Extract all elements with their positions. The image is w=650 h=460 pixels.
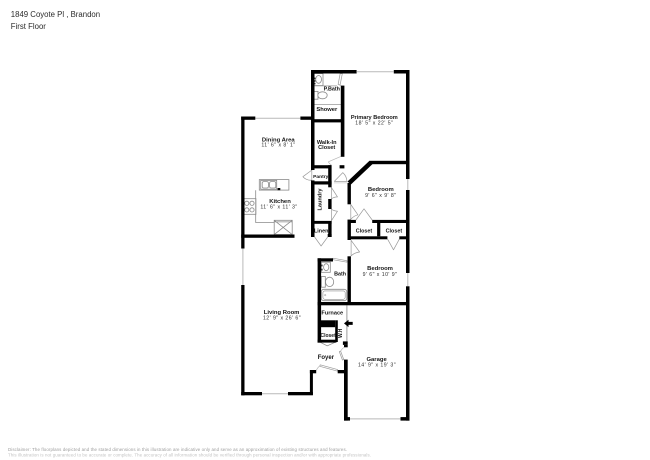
- svg-text:9' 6" x 10' 9": 9' 6" x 10' 9": [363, 272, 398, 278]
- svg-text:W.H: W.H: [338, 328, 344, 338]
- svg-text:9' 6" x 9' 8": 9' 6" x 9' 8": [365, 193, 396, 199]
- svg-text:This illustration is not guara: This illustration is not guaranteed to b…: [8, 453, 371, 458]
- svg-text:First Floor: First Floor: [11, 22, 46, 31]
- svg-text:Laundry: Laundry: [317, 188, 323, 211]
- svg-text:Disclaimer: The floorplans dep: Disclaimer: The floorplans depicted and …: [8, 447, 347, 452]
- svg-text:P.Bath: P.Bath: [324, 86, 340, 92]
- svg-text:11' 6" x 11' 3": 11' 6" x 11' 3": [260, 204, 297, 210]
- svg-text:Foyer: Foyer: [318, 355, 335, 361]
- svg-text:18' 5" x 22' 5": 18' 5" x 22' 5": [355, 121, 393, 127]
- svg-text:12' 9" x 26' 6": 12' 9" x 26' 6": [263, 316, 301, 322]
- svg-text:Closet: Closet: [320, 333, 336, 339]
- svg-text:Closet: Closet: [318, 145, 335, 151]
- svg-text:Linen: Linen: [314, 228, 328, 234]
- svg-text:11' 6" x 8' 1": 11' 6" x 8' 1": [261, 142, 295, 148]
- svg-text:Shower: Shower: [316, 107, 338, 113]
- svg-text:Bath: Bath: [334, 272, 346, 278]
- svg-text:1849 Coyote Pl , Brandon: 1849 Coyote Pl , Brandon: [11, 10, 100, 19]
- svg-text:Closet: Closet: [356, 228, 373, 234]
- svg-text:Furnace: Furnace: [321, 311, 343, 317]
- svg-text:14' 9" x 19' 3": 14' 9" x 19' 3": [358, 362, 396, 368]
- svg-text:Closet: Closet: [386, 228, 403, 234]
- svg-text:Pantry: Pantry: [313, 174, 329, 180]
